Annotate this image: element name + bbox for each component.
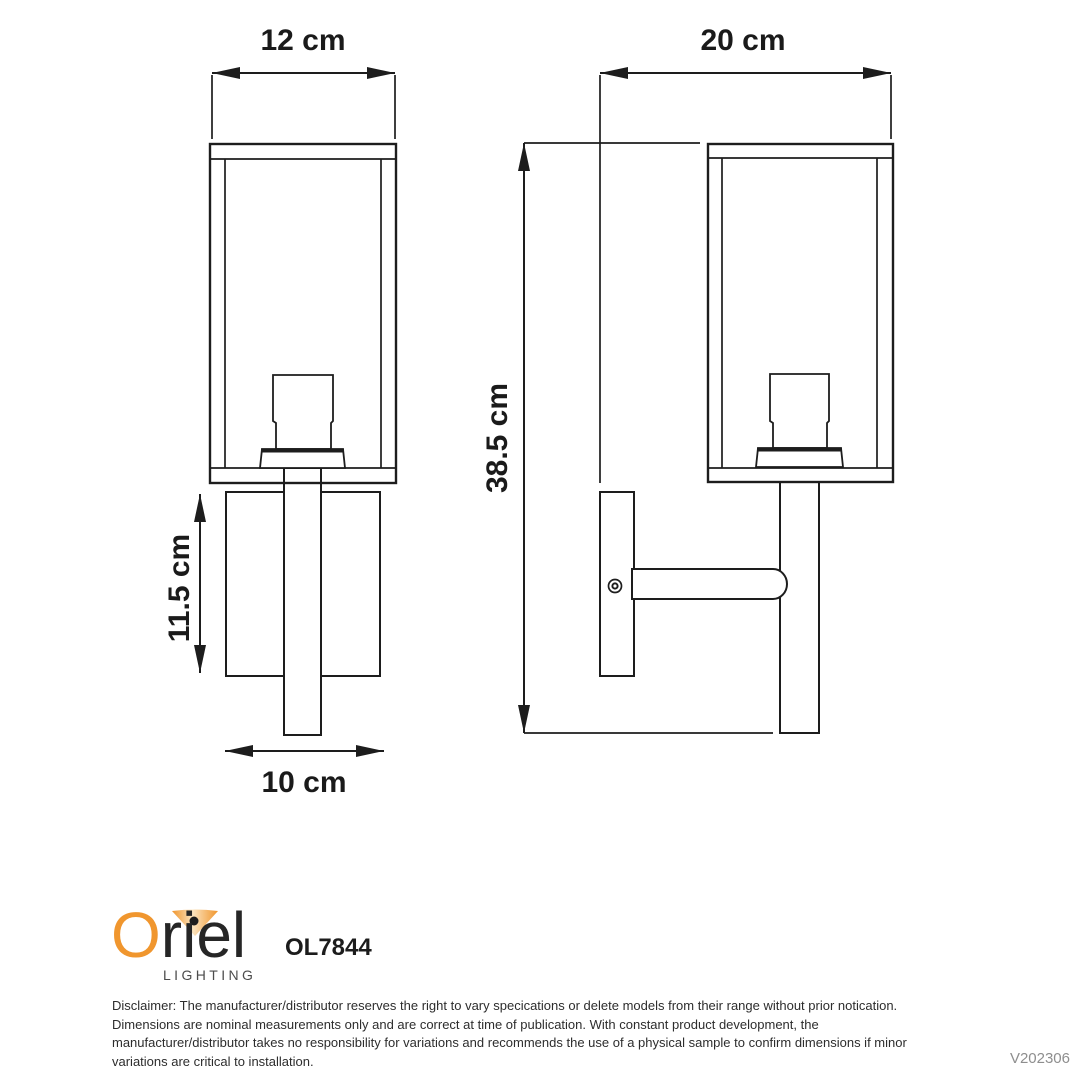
side-bracket-arm [632, 569, 787, 599]
front-view-drawing [210, 144, 396, 735]
overall-height-dimension [524, 143, 773, 733]
front-mounting-arm [284, 468, 321, 735]
brand-name: Oriel [111, 903, 246, 967]
disclaimer-text: Disclaimer: The manufacturer/distributor… [112, 997, 907, 1071]
disclaimer-line: variations are critical to installation. [112, 1053, 907, 1072]
model-number: OL7844 [285, 934, 372, 962]
overall-height-label: 38.5 cm [481, 383, 515, 493]
front-width-dimension [212, 73, 395, 139]
side-vertical-arm [780, 482, 819, 733]
front-width-label: 12 cm [260, 24, 345, 58]
disclaimer-line: manufacturer/distributor takes no respon… [112, 1034, 907, 1053]
front-lamp-socket [260, 375, 345, 468]
side-lamp-socket [756, 374, 843, 467]
version-code: V202306 [1010, 1050, 1070, 1067]
spec-sheet: 12 cm 20 cm 38.5 cm 11.5 cm 10 cm Oriel … [0, 0, 1080, 1080]
side-view-drawing [600, 144, 893, 733]
side-depth-dimension [600, 73, 891, 483]
backplate-width-label: 10 cm [261, 766, 346, 800]
backplate-height-label: 11.5 cm [163, 534, 197, 642]
disclaimer-line: Disclaimer: The manufacturer/distributor… [112, 997, 907, 1016]
side-depth-label: 20 cm [700, 24, 785, 58]
brand-rest: riel [161, 899, 246, 971]
disclaimer-line: Dimensions are nominal measurements only… [112, 1016, 907, 1035]
brand-initial: O [111, 899, 161, 971]
brand-subtitle: LIGHTING [163, 967, 256, 983]
